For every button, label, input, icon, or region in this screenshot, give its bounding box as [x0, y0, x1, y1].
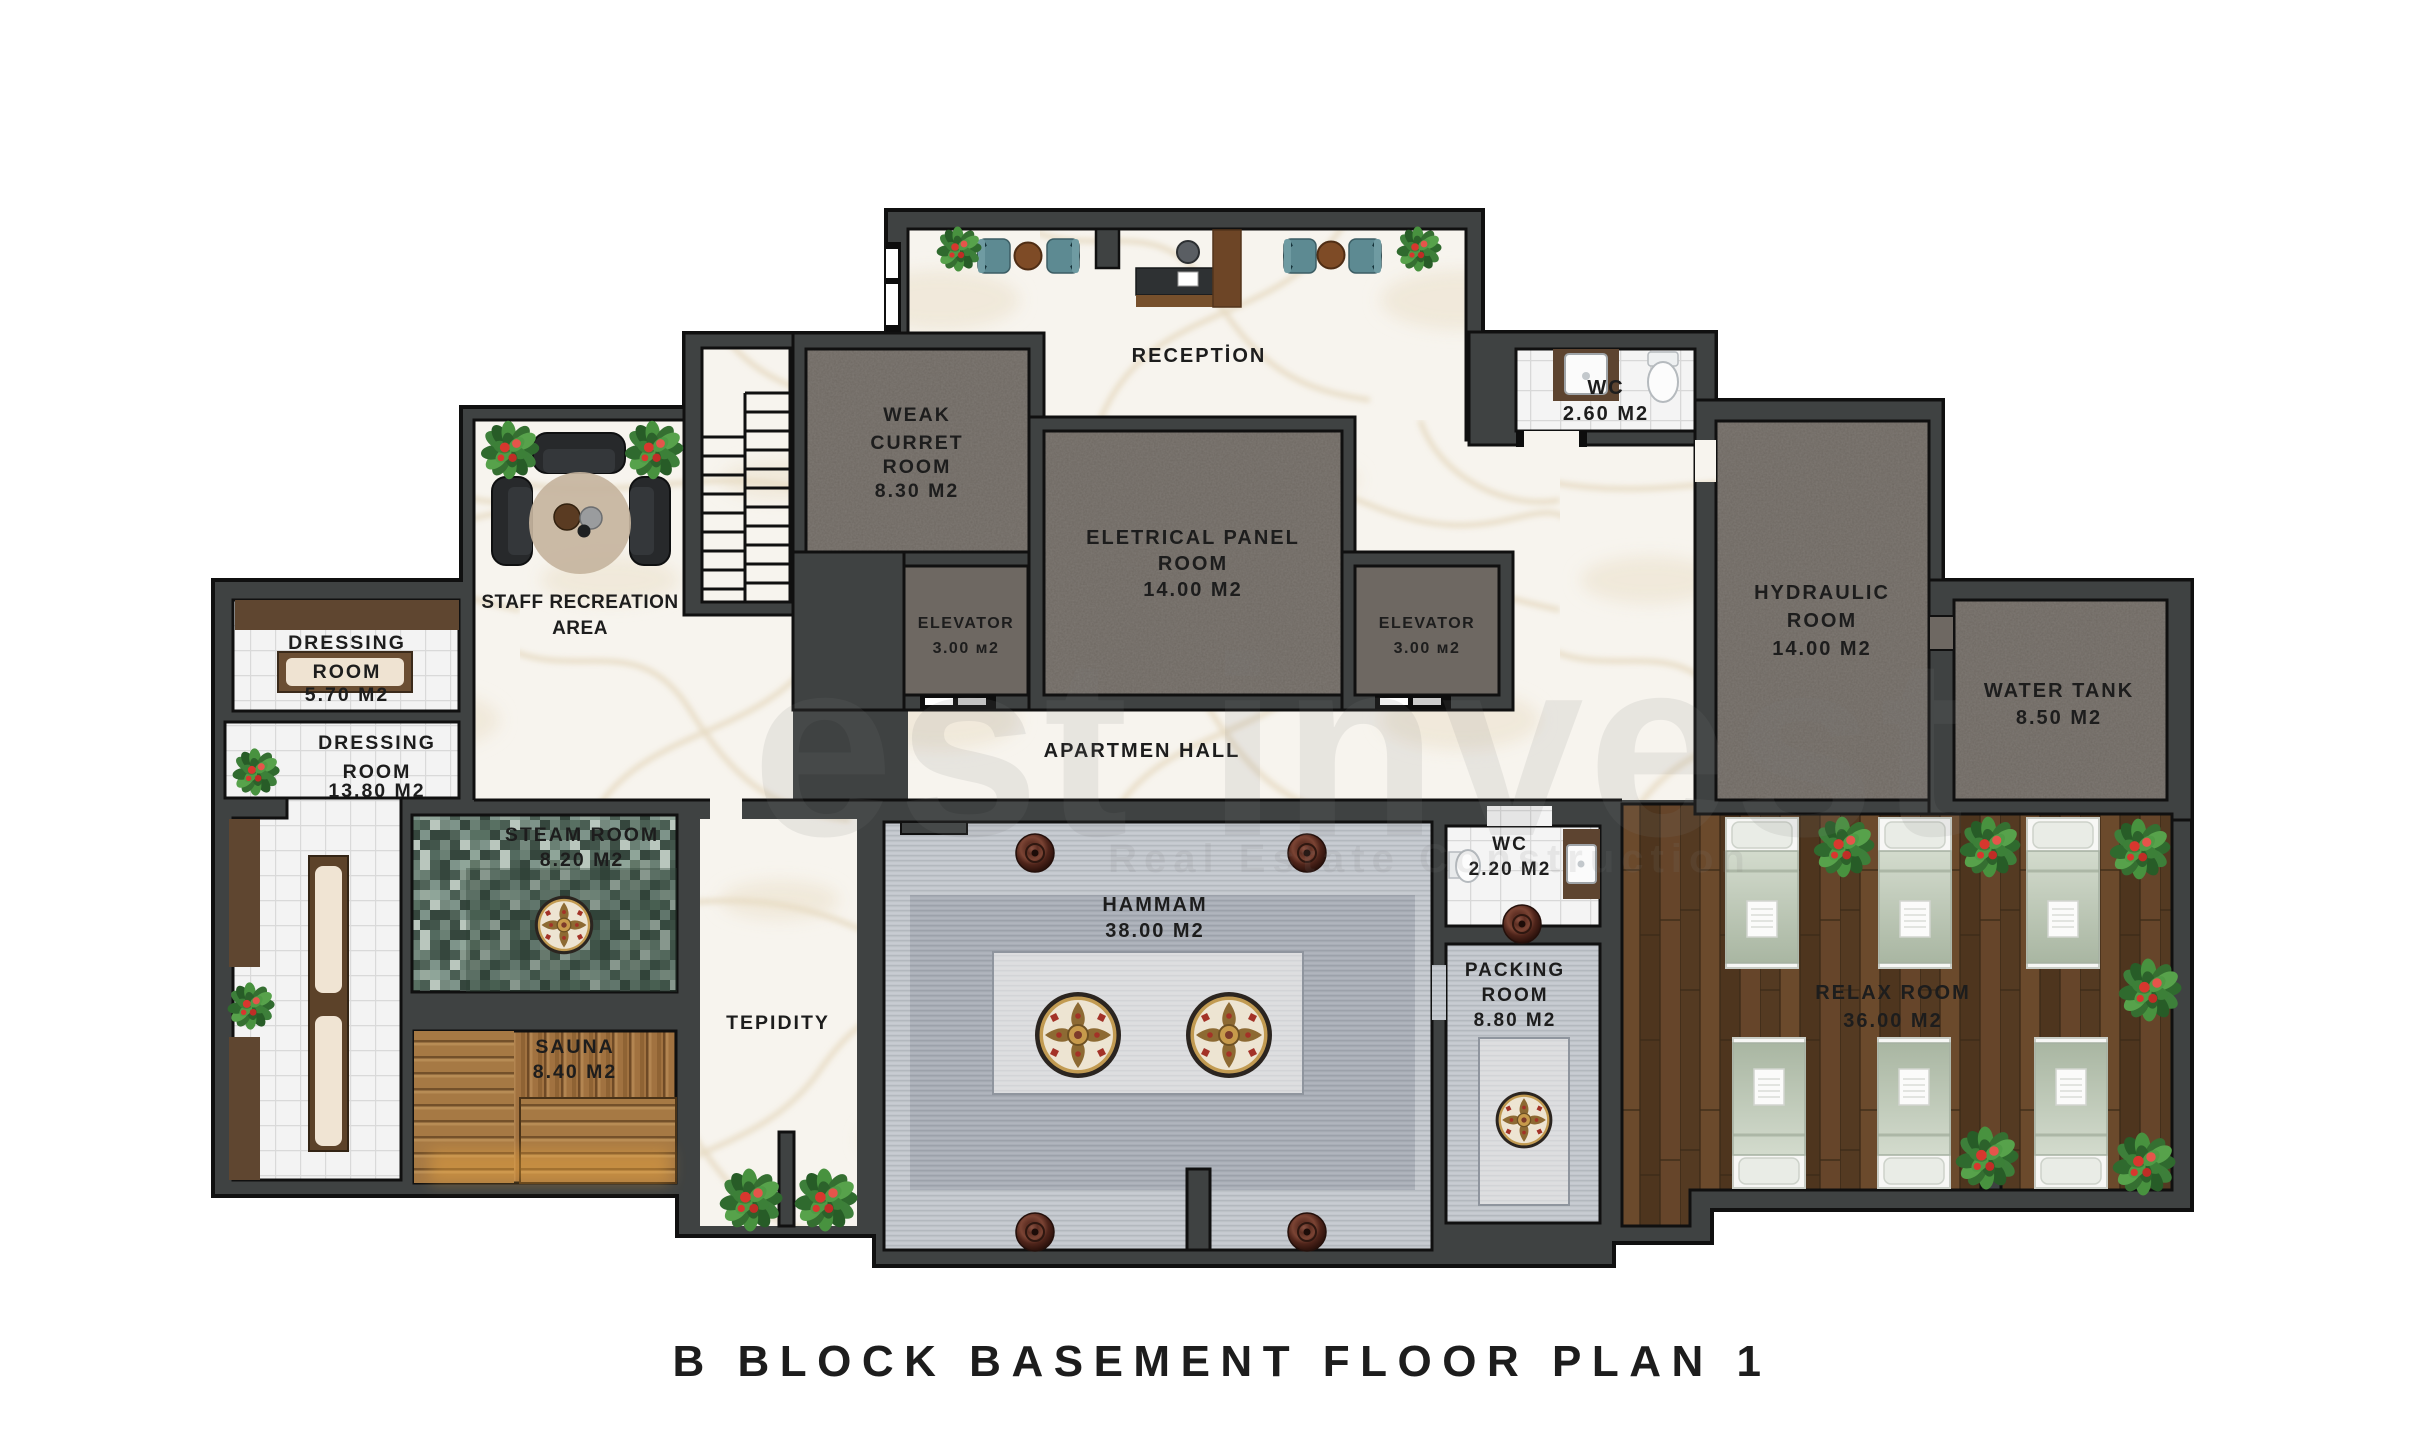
svg-text:B BLOCK BASEMENT FLOOR PLA: B BLOCK BASEMENT FLOOR PLAN 1 [673, 1337, 1772, 1386]
svg-text:38.00 M2: 38.00 M2 [1105, 920, 1204, 942]
svg-text:WC: WC [1587, 377, 1624, 399]
svg-text:STAFF RECREATION: STAFF RECREATION [481, 592, 678, 613]
svg-text:TEPIDITY: TEPIDITY [726, 1012, 830, 1034]
svg-text:8.50 M2: 8.50 M2 [2016, 707, 2102, 729]
svg-text:HAMMAM: HAMMAM [1102, 894, 1207, 916]
svg-text:HYDRAULIC: HYDRAULIC [1754, 582, 1890, 604]
svg-text:STEAM ROOM: STEAM ROOM [505, 824, 659, 846]
svg-text:RELAX ROOM: RELAX ROOM [1815, 982, 1971, 1004]
svg-text:RECEPTİON: RECEPTİON [1132, 344, 1267, 367]
svg-text:ELETRICAL PANEL: ELETRICAL PANEL [1086, 527, 1300, 549]
svg-text:ROOM: ROOM [1481, 985, 1548, 1006]
svg-text:DRESSING: DRESSING [318, 732, 436, 754]
svg-text:DRESSING: DRESSING [288, 632, 406, 654]
svg-text:SAUNA: SAUNA [535, 1036, 614, 1058]
svg-text:36.00 M2: 36.00 M2 [1843, 1010, 1942, 1032]
svg-text:8.80 M2: 8.80 M2 [1474, 1010, 1557, 1031]
svg-text:Real Estate Construction: Real Estate Construction [1108, 837, 1752, 881]
svg-text:8.30 M2: 8.30 M2 [875, 480, 959, 502]
svg-text:WATER TANK: WATER TANK [1984, 680, 2134, 702]
svg-text:CURRET: CURRET [870, 432, 963, 454]
svg-text:5.70 M2: 5.70 M2 [305, 684, 389, 706]
svg-text:14.00 M2: 14.00 M2 [1143, 579, 1242, 601]
svg-text:PACKING: PACKING [1465, 960, 1565, 981]
svg-text:WEAK: WEAK [883, 404, 951, 426]
svg-text:AREA: AREA [552, 618, 608, 639]
svg-text:ROOM: ROOM [1158, 553, 1228, 575]
svg-text:13.80 M2: 13.80 M2 [328, 780, 425, 802]
svg-text:8.20 M2: 8.20 M2 [540, 849, 624, 871]
svg-text:2.60 M2: 2.60 M2 [1563, 403, 1649, 425]
svg-text:ROOM: ROOM [883, 456, 952, 478]
svg-text:8.40 M2: 8.40 M2 [533, 1061, 617, 1083]
svg-text:ROOM: ROOM [313, 661, 382, 683]
